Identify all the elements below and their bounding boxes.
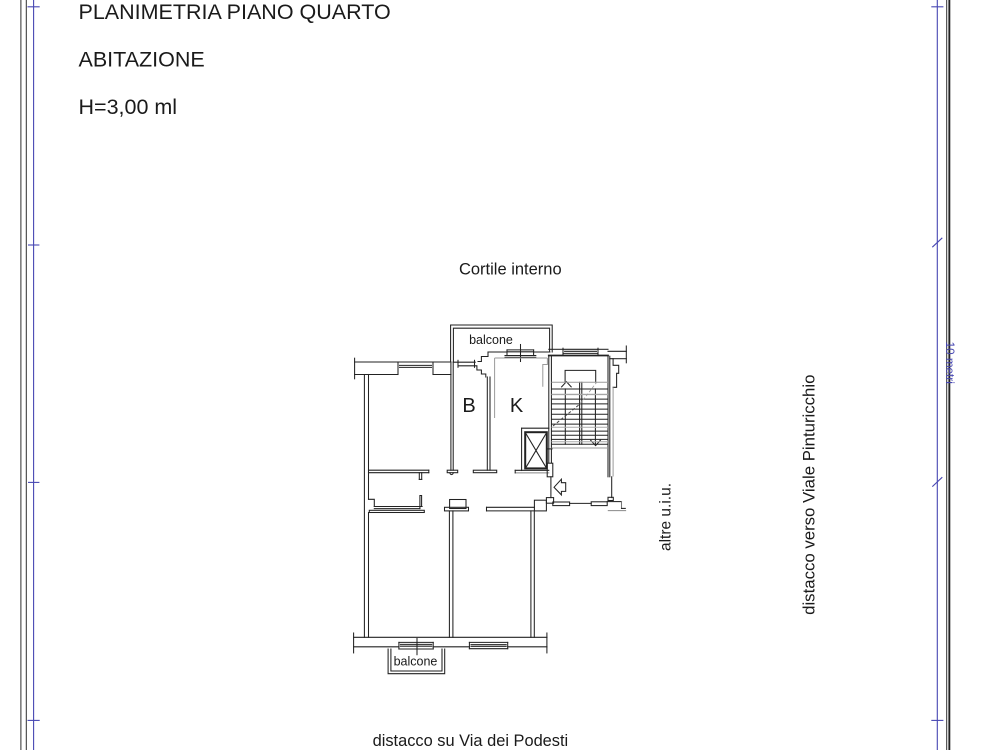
svg-text:K: K bbox=[510, 395, 524, 417]
svg-text:distacco su Via dei Podesti: distacco su Via dei Podesti bbox=[373, 732, 569, 750]
svg-text:10 metri: 10 metri bbox=[943, 342, 956, 384]
svg-text:PLANIMETRIA PIANO QUARTO: PLANIMETRIA PIANO QUARTO bbox=[79, 0, 391, 24]
svg-text:distacco verso Viale Pinturicc: distacco verso Viale Pinturicchio bbox=[800, 375, 819, 615]
svg-text:balcone: balcone bbox=[469, 333, 513, 347]
svg-text:B: B bbox=[462, 395, 475, 417]
svg-text:ABITAZIONE: ABITAZIONE bbox=[79, 48, 205, 72]
svg-text:altre u.i.u.: altre u.i.u. bbox=[658, 483, 675, 551]
svg-text:Cortile interno: Cortile interno bbox=[459, 261, 562, 279]
svg-text:balcone: balcone bbox=[394, 655, 438, 669]
svg-text:H=3,00 ml: H=3,00 ml bbox=[79, 95, 178, 119]
